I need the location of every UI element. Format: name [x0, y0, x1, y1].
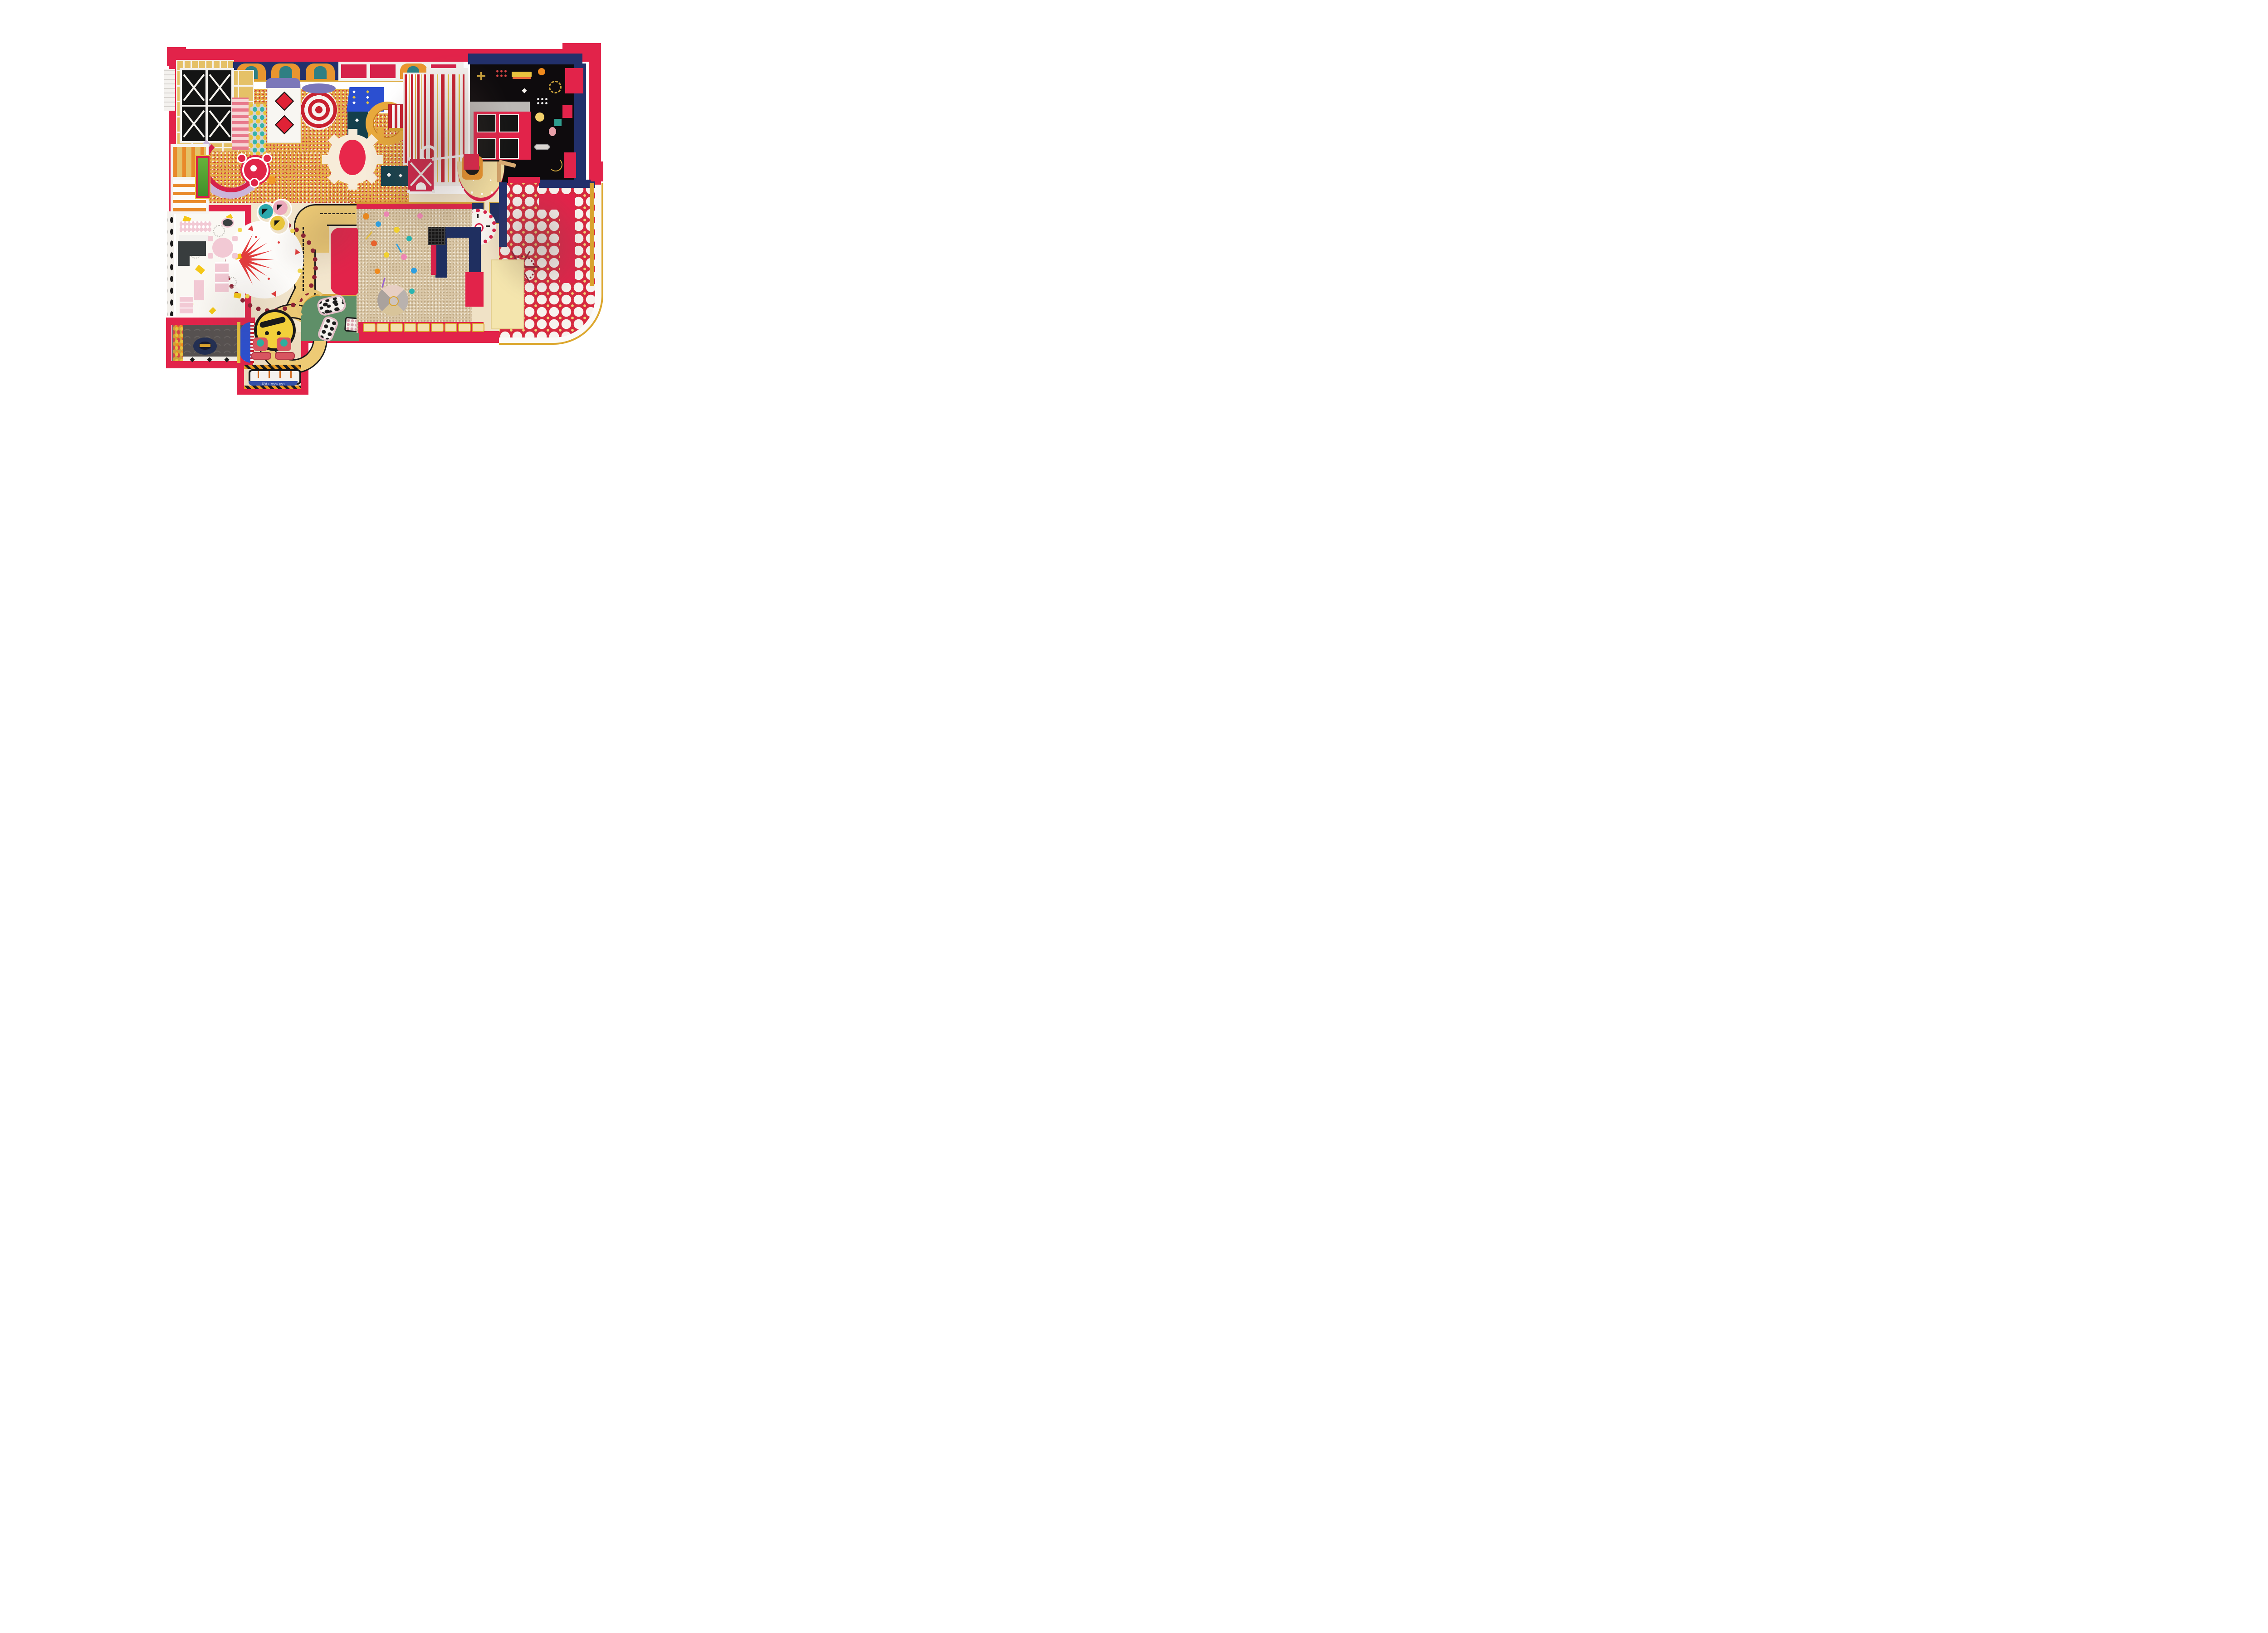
food-shelves: [173, 325, 183, 361]
climb-net-pad: [428, 227, 445, 245]
confetti: [234, 293, 241, 298]
red-play-block: [562, 105, 572, 118]
bench-slot: [472, 323, 484, 332]
stage-rim-dot: [471, 191, 473, 194]
sparkle: [399, 174, 402, 177]
arcade-wall-north: [468, 54, 582, 64]
car-bumper: [275, 352, 295, 360]
hazard-stripe: [244, 386, 301, 389]
red-tab-right: [591, 161, 603, 181]
display-shelf: [215, 262, 229, 292]
awning-counter: [389, 128, 405, 131]
tent-post: [432, 190, 435, 193]
spinner-knob: [249, 178, 259, 188]
trampoline-cell: [182, 107, 205, 141]
doodle-train: [512, 72, 532, 77]
kiosk-screen: [477, 114, 496, 132]
smiley-eye: [265, 331, 269, 335]
pit-toy: [375, 269, 380, 274]
pit-toy: [363, 213, 369, 220]
ride-on-ball-pink: [273, 200, 288, 215]
stage-rim-dot: [481, 193, 483, 195]
spinner-knob: [262, 153, 272, 163]
diamond-banner-slide: [267, 84, 301, 143]
sunburst-dot-red: [268, 278, 270, 280]
teal-walkway: [381, 166, 410, 186]
oval-table: [212, 238, 233, 258]
gear-red-oval: [339, 140, 366, 175]
pit-toy: [376, 221, 381, 227]
trampoline-cell: [208, 70, 231, 105]
bench-slot: [390, 323, 403, 332]
ball-face: [274, 220, 280, 226]
rounded-red-wall: [331, 228, 358, 295]
sunburst-dot-yellow: [298, 269, 302, 273]
bench-slot: [363, 323, 376, 332]
stool: [232, 236, 238, 241]
red-diamond: [275, 92, 294, 111]
doodle-circle-orange: [538, 68, 545, 75]
tent-post: [407, 190, 410, 193]
clothes-rack-long: [180, 221, 211, 232]
x-top-tent: [408, 159, 434, 191]
red-diamond: [275, 115, 294, 134]
pit-toy: [384, 252, 389, 258]
kiosk-screen: [499, 114, 519, 132]
projection-screen: [196, 156, 210, 198]
stage-rim-dot: [491, 191, 493, 194]
pit-toy: [394, 227, 400, 233]
stool: [208, 253, 213, 259]
confetti-dotted-circle: [213, 225, 225, 237]
pit-toy: [417, 213, 423, 219]
tool-room-label: Tool room 工具房: [249, 381, 298, 385]
striped-cone-tower: [300, 90, 337, 130]
kiosk-screen: [477, 138, 496, 159]
red-block-pit: [465, 272, 484, 307]
market-wall-left: [166, 318, 171, 367]
doodle-snowflake: [480, 72, 482, 80]
carnival-cabinet: [306, 64, 335, 80]
dome-cap: [389, 296, 399, 306]
pit-toy: [384, 211, 389, 217]
kiddie-car: [253, 337, 268, 351]
red-play-block: [564, 152, 576, 178]
pink-stairs: [232, 98, 249, 150]
market-wall-top: [166, 318, 255, 325]
pit-toy: [401, 254, 407, 260]
sunburst-dot-red: [255, 236, 257, 238]
red-couch-l-side: [560, 194, 575, 283]
tool-mat-band: Tool room 工具房: [249, 381, 298, 386]
ball-face: [277, 205, 283, 210]
pit-toy: [409, 288, 415, 294]
doodle-dots-white: [536, 97, 548, 105]
stall-cell: [370, 64, 396, 78]
bean-pit-north-wall: [357, 202, 472, 209]
diamond-dot: [366, 96, 369, 99]
smiley-band: [259, 316, 286, 328]
carnival-cabinet: [271, 64, 300, 80]
halfpipe-gold-trim: [237, 322, 240, 363]
banner-purple-cap: [266, 78, 300, 88]
cream-table: [491, 259, 524, 329]
stall-cell: [341, 64, 367, 78]
doodle-gear: [549, 81, 562, 93]
pit-toy: [406, 236, 412, 241]
target-center: [250, 165, 257, 171]
kiosk-screen: [499, 138, 519, 159]
small-rack: [180, 296, 193, 314]
ride-on-ball-yellow: [270, 216, 285, 230]
navy-divider-strip: [499, 182, 507, 247]
kiddie-car: [277, 337, 291, 351]
bench-slot: [404, 323, 416, 332]
car-seat: [257, 339, 264, 347]
bench-slot: [376, 323, 389, 332]
mirror: [221, 218, 234, 228]
orange-play-ball: [268, 176, 276, 184]
cabinet-inlay: [314, 66, 327, 79]
red-play-block: [565, 68, 583, 93]
climbing-dome: [377, 285, 408, 316]
bubble-climb-panel: [250, 104, 266, 155]
sunburst-dot-yellow: [290, 229, 295, 233]
diamond-dot: [366, 90, 369, 93]
sunburst-dot-red: [278, 241, 280, 244]
dresser: [194, 280, 204, 300]
doodle-racecar: [534, 144, 550, 150]
diamond-dot: [352, 90, 356, 93]
wall-stub-above-dotted: [508, 177, 540, 183]
ornate-wall-panels-left: [167, 211, 174, 316]
gear-platform: [323, 130, 382, 189]
trampoline-cell: [182, 70, 205, 105]
doodle-balloon: [549, 127, 556, 136]
drum-red-cap: [464, 154, 479, 170]
ball-face: [262, 209, 268, 215]
playground-floorplan-render: Tool room 工具房: [0, 0, 711, 427]
checkout-counter-oval: [193, 337, 217, 355]
navy-tower-east: [469, 227, 481, 278]
bench-slot: [417, 323, 430, 332]
pit-toy: [411, 268, 417, 274]
cabinet-inlay: [279, 66, 292, 79]
diamond-dot: [352, 96, 356, 99]
doodle-gold-arcs: [549, 158, 562, 171]
stool: [208, 236, 213, 241]
teal-play-block: [554, 119, 562, 126]
stool: [232, 253, 238, 259]
car-bumper: [251, 352, 271, 360]
tent-post: [432, 157, 435, 161]
diamond-dot: [366, 101, 369, 104]
pit-toy: [371, 240, 377, 246]
drum-photo-op: [462, 156, 483, 180]
tent-post: [407, 157, 410, 161]
sunburst-dot-yellow: [238, 228, 242, 232]
tent-dome-window: [416, 182, 426, 190]
bench-slot: [445, 323, 457, 332]
bench-slot: [431, 323, 444, 332]
stage-rim-dot: [462, 188, 464, 190]
bench-slot: [458, 323, 471, 332]
sparkle: [387, 173, 391, 177]
cone-purple-cap: [302, 83, 336, 93]
gold-wall-strip-right: [590, 183, 594, 286]
counter-top-band: [179, 235, 209, 241]
doodle-dots-red: [495, 69, 507, 78]
arcade-wall-south: [539, 180, 595, 188]
ac-units-left: [164, 69, 175, 111]
smiley-eye: [277, 331, 281, 335]
sparkle: [355, 118, 359, 122]
counter-slot: [200, 344, 210, 347]
hazard-stripe: [244, 365, 301, 369]
doodle-smiley: [535, 112, 544, 122]
door-frame: [497, 161, 501, 182]
car-seat: [280, 339, 288, 347]
sunburst-dot-yellow: [245, 294, 249, 298]
spinner-knob: [237, 153, 247, 163]
ride-on-ball-teal: [259, 204, 273, 219]
diamond-dot: [352, 101, 356, 104]
dark-counter-leg: [178, 241, 190, 266]
